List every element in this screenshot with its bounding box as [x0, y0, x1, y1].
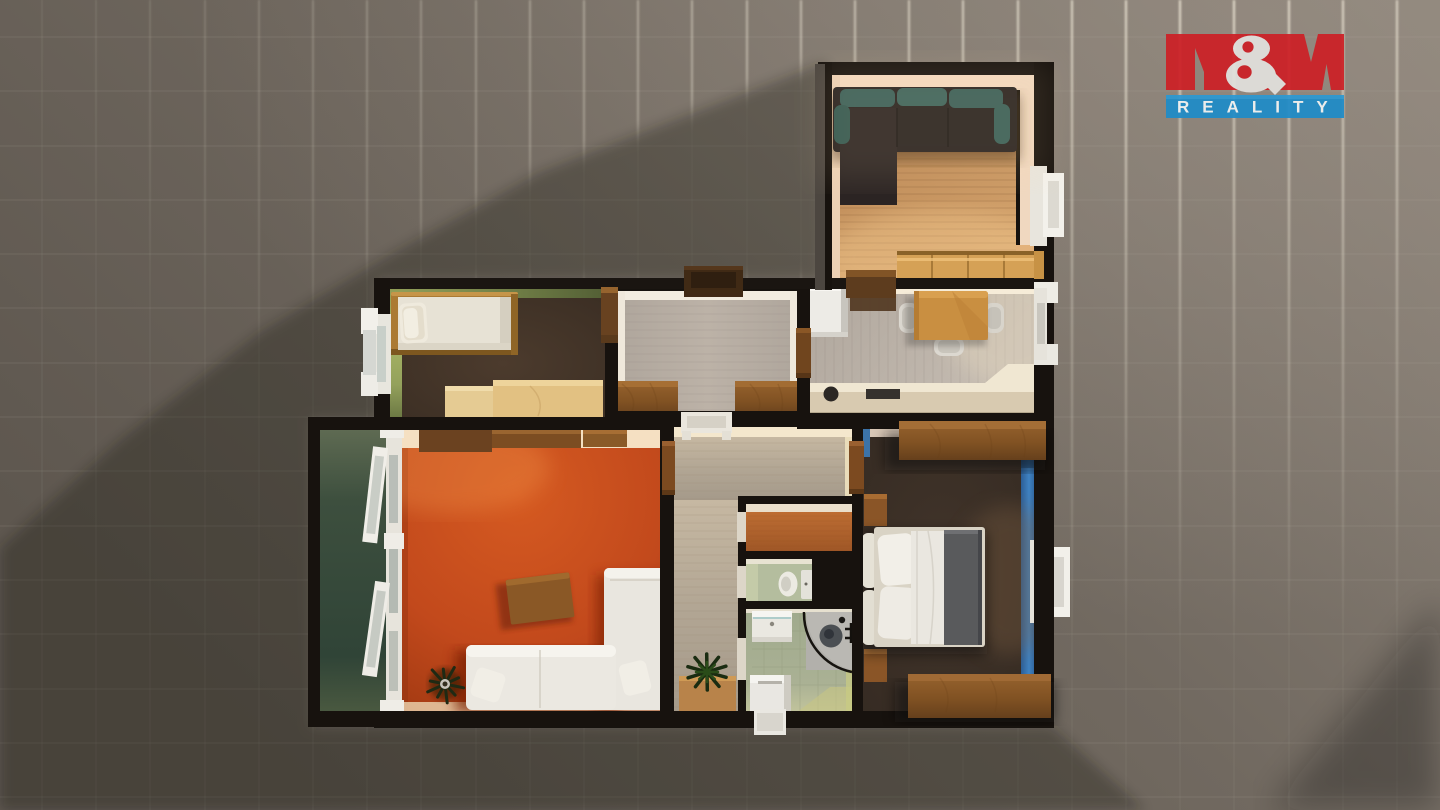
- svg-text:REALITY: REALITY: [1177, 98, 1341, 117]
